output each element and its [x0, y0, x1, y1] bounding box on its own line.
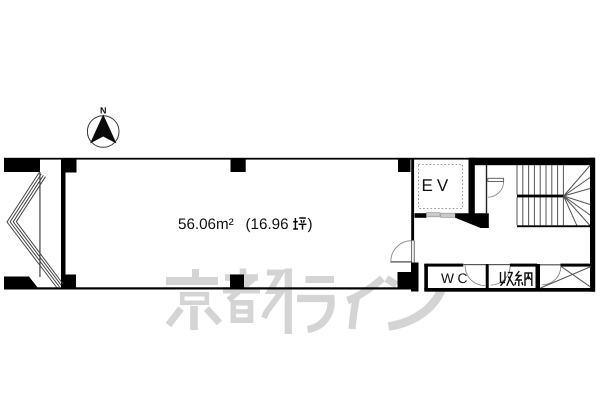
svg-text:WC: WC	[441, 271, 471, 286]
svg-text:EV: EV	[422, 176, 453, 195]
svg-text:N: N	[100, 106, 107, 116]
svg-text:56.06m²: 56.06m²	[178, 216, 234, 233]
svg-text:(16.96: (16.96	[246, 216, 289, 233]
svg-text:): )	[308, 216, 313, 233]
